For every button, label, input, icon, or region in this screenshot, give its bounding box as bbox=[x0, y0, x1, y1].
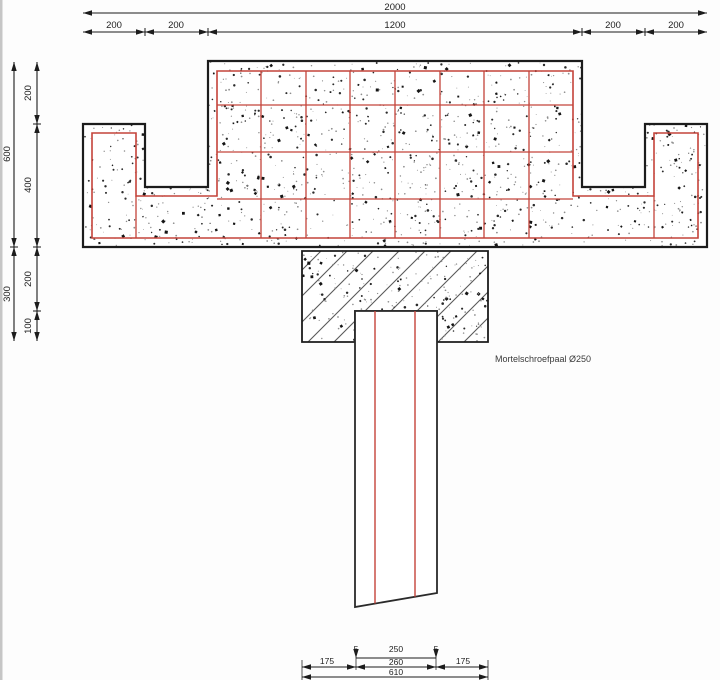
dim-bottom-175-left: 175 bbox=[320, 656, 334, 666]
bottom-dimensions: 5 250 5 175 175 260 610 bbox=[302, 644, 488, 680]
dim-top-seg-4: 200 bbox=[605, 20, 621, 31]
dim-left-200a: 200 bbox=[23, 85, 34, 101]
dim-bottom-250: 250 bbox=[389, 644, 403, 654]
dim-top-seg-3: 1200 bbox=[384, 20, 405, 31]
top-dimensions: 2000 200 200 1200 200 200 bbox=[83, 2, 707, 36]
page-edge-line bbox=[0, 0, 3, 680]
dim-arrows-left bbox=[11, 62, 39, 341]
pile-outline bbox=[355, 311, 437, 607]
dim-top-seg-2: 200 bbox=[168, 20, 184, 31]
dim-top-seg-5: 200 bbox=[668, 20, 684, 31]
dim-top-total: 2000 bbox=[384, 2, 405, 13]
dim-left-400: 400 bbox=[23, 177, 34, 193]
pile-shaft bbox=[355, 311, 437, 607]
concrete-footing bbox=[83, 61, 707, 247]
left-dimensions: 600 300 200 400 200 100 bbox=[2, 62, 41, 341]
drawing-canvas: 2000 200 200 1200 200 200 bbox=[0, 0, 720, 680]
foundation-section-drawing: 2000 200 200 1200 200 200 bbox=[0, 0, 720, 680]
pile-label: Mortelschroefpaal Ø250 bbox=[495, 354, 591, 364]
dim-left-100: 100 bbox=[23, 318, 34, 334]
dim-bottom-260: 260 bbox=[389, 657, 403, 667]
dim-bottom-610: 610 bbox=[389, 667, 403, 677]
dim-top-seg-1: 200 bbox=[106, 20, 122, 31]
dim-left-600: 600 bbox=[2, 146, 13, 162]
dim-left-300: 300 bbox=[2, 286, 13, 302]
dim-left-200b: 200 bbox=[23, 271, 34, 287]
dim-bottom-175-right: 175 bbox=[456, 656, 470, 666]
